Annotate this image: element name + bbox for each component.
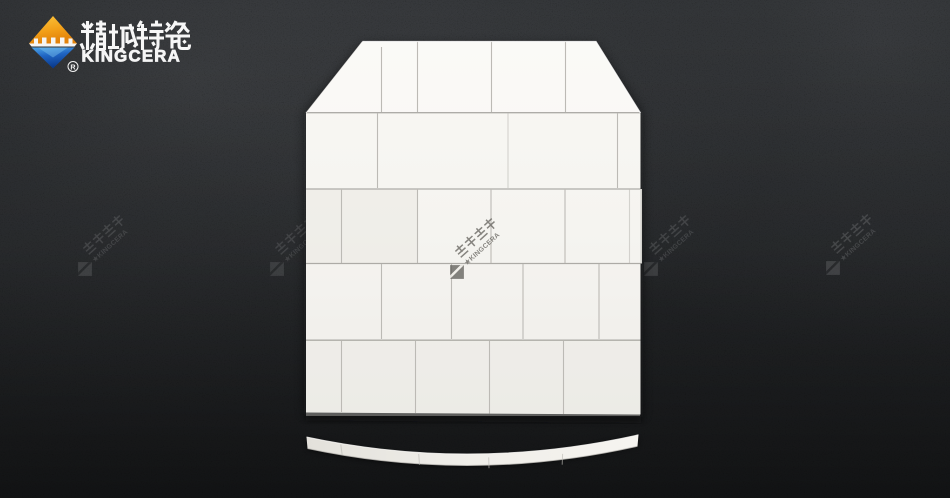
svg-text:KINGCERA: KINGCERA	[82, 47, 182, 66]
svg-text:R: R	[70, 62, 76, 71]
